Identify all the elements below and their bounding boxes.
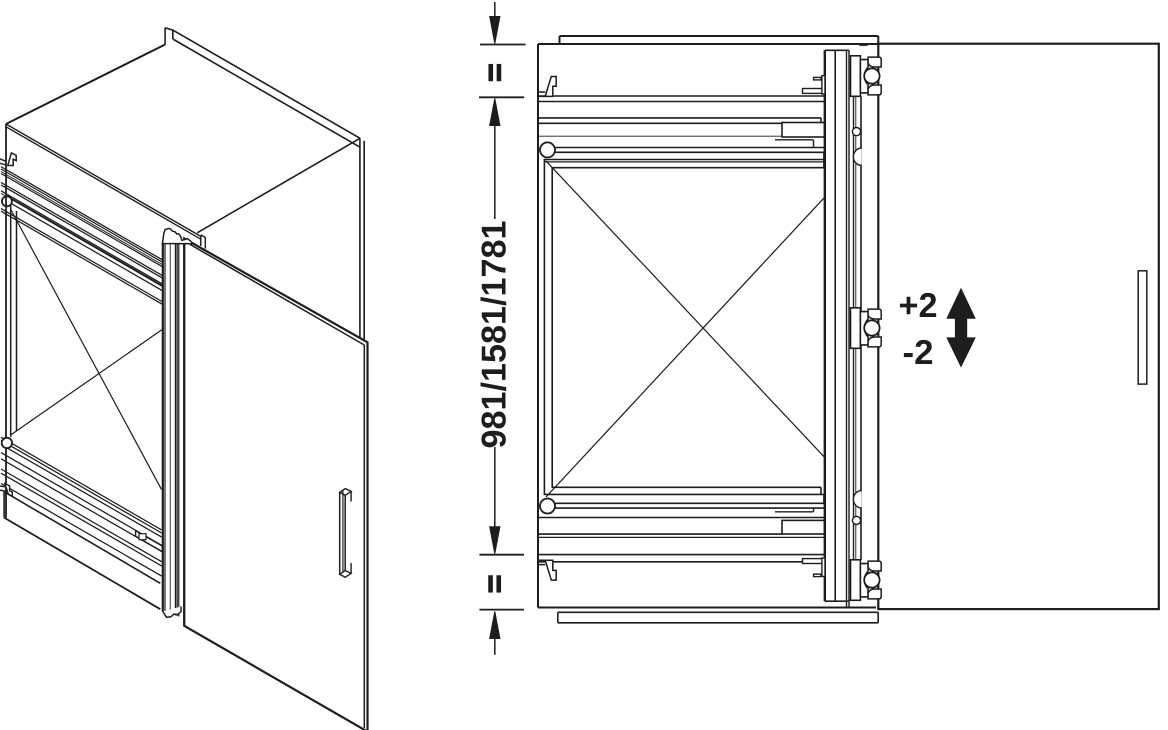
svg-text:981/1581/1781: 981/1581/1781 [476,221,514,449]
svg-text:+2: +2 [899,287,938,325]
svg-text:-2: -2 [903,334,934,372]
